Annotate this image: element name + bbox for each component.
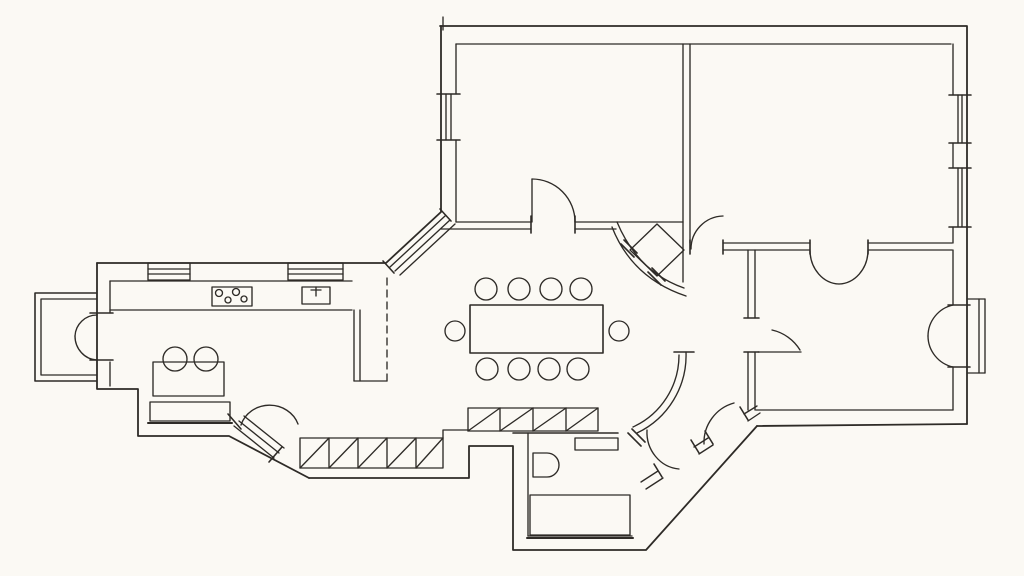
southwest-door-line-2: [239, 421, 279, 453]
wardrobe-left-diag-1: [300, 438, 329, 468]
entry-door-arc-lower: [647, 430, 679, 469]
dining-chair-bottom-2: [508, 358, 530, 380]
toilet: [533, 453, 559, 477]
balcony-left-outer-rail: [35, 293, 96, 381]
wardrobe-right-diag-2: [500, 408, 533, 431]
window-kitchen-2-frame: [288, 263, 343, 280]
exterior-wall-kitchen-top-and-left-outer: [97, 26, 441, 263]
entry-door-jamb-3: [705, 431, 713, 444]
hall-curved-wall-inner: [633, 355, 679, 427]
dining-chair-bottom-1: [476, 358, 498, 380]
kitchen-table: [153, 362, 224, 396]
dining-chair-bottom-4: [567, 358, 589, 380]
bathroom-cabinet: [575, 438, 618, 450]
wardrobe-left-diag-4: [387, 438, 416, 468]
wardrobe-right-diag-4: [566, 408, 598, 431]
french-door-right-arc-upper: [928, 305, 953, 336]
dining-chair-top-1: [475, 278, 497, 300]
dining-chair-bottom-3: [538, 358, 560, 380]
entry-wall-segment-3b: [748, 413, 760, 421]
entry-wall-segment-1a: [641, 471, 658, 482]
wardrobe-left-diag-5: [416, 438, 443, 468]
stove-burner-2: [225, 297, 231, 303]
stove-burner-4: [241, 296, 247, 302]
wall-step-between-wardrobes: [443, 430, 469, 438]
exterior-wall-top-and-right-outer: [440, 26, 967, 424]
room-a-door-arc: [532, 179, 575, 222]
entry-door-jamb-1: [654, 464, 662, 477]
kitchen-bench: [150, 402, 230, 421]
balcony-door-arc-upper: [75, 315, 97, 336]
window-kitchen-1-frame: [148, 263, 190, 280]
stove-burner-1: [216, 290, 223, 297]
wardrobe-right-diag-1: [468, 408, 500, 431]
kitchen-stool-1: [163, 347, 187, 371]
entry-door-jamb-2: [691, 440, 699, 453]
dining-chair-top-3: [540, 278, 562, 300]
dining-chair-left: [445, 321, 465, 341]
window-diagonal-line-2: [395, 220, 450, 271]
wardrobe-right-diag-3: [533, 408, 566, 431]
floor-plan-svg: [0, 0, 1024, 576]
wardrobe-left-diag-2: [329, 438, 358, 468]
balcony-left-inner-rail: [41, 299, 96, 375]
entry-wall-segment-2b: [699, 445, 713, 454]
southwest-door-arc: [241, 405, 298, 425]
balcony-door-arc-lower: [75, 336, 97, 360]
kitchen-stool-2: [194, 347, 218, 371]
entry-door-jamb-4: [740, 407, 748, 420]
floor-plan: [0, 0, 1024, 576]
window-diagonal-jamb-bottom: [383, 261, 394, 273]
dining-chair-right: [609, 321, 629, 341]
dining-chair-top-2: [508, 278, 530, 300]
wardrobe-left-frame: [300, 438, 443, 468]
vestibule-door-arc: [691, 216, 723, 249]
stove-burner-3: [233, 289, 240, 296]
double-door-arc-right: [839, 251, 868, 284]
double-door-arc-left: [810, 251, 839, 284]
exterior-wall-entry-and-bathroom-outer: [309, 426, 757, 550]
bathtub: [530, 495, 630, 535]
entry-wall-segment-1b: [646, 478, 663, 489]
dining-table: [470, 305, 603, 353]
dining-chair-top-4: [570, 278, 592, 300]
right-room-door-arc: [772, 330, 800, 350]
entry-wall-segment-2a: [694, 438, 708, 447]
wardrobe-left-diag-3: [358, 438, 387, 468]
southwest-door-line-3: [244, 416, 284, 448]
french-door-right-arc-lower: [928, 336, 953, 367]
corner-stove-curved-wall-outer: [612, 227, 686, 296]
exterior-wall-right-room-bottom-outer: [757, 424, 967, 426]
